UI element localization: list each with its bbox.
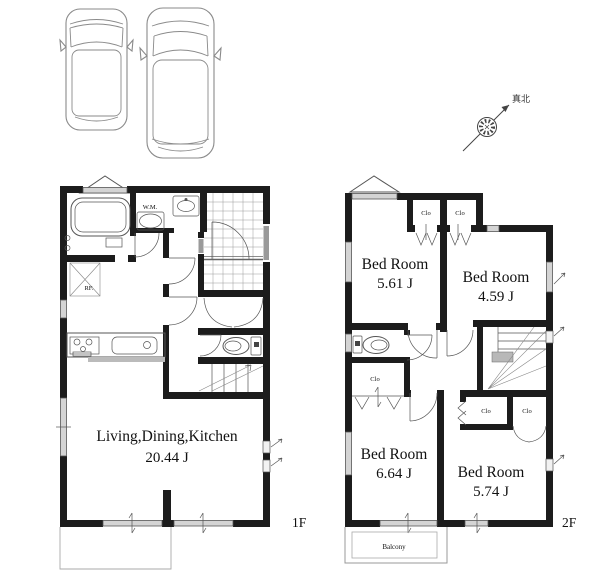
large-car-top-view-icon [140,8,221,158]
bedroom1-area: 5.61 J [377,276,413,292]
bedroom2-name: Bed Room [463,269,530,286]
window-2f-right [547,262,553,292]
floor-label-1f: 1F [292,515,307,530]
floorplan-canvas: 真北 [0,0,600,574]
window-2f-bottom-right [465,521,488,527]
bedroom4-area: 5.74 J [473,484,509,500]
vent-window-right-1 [263,441,270,453]
small-car-top-view-icon [60,9,133,130]
closet-doors-mid [458,401,546,442]
label-washing-machine: W.M. [143,204,158,211]
closet-fold-doors-left [352,387,404,409]
window-ldk-bottom-right [174,521,233,527]
floor-plan-2f: Balcony Bed Room 5.61 J Bed Room 4.59 J … [345,176,577,563]
stove [70,337,99,354]
floor-label-2f: 2F [562,515,577,530]
window-2f-left-3 [346,432,352,475]
window-2f-top [352,194,397,200]
kitchen-counter [67,333,165,362]
stairs-1f [199,364,263,392]
washbasin [173,196,199,216]
closet-label-5: Clo [522,408,531,415]
closet-label-1: Clo [421,210,430,217]
stairs-2f [488,327,546,389]
compass-rose-icon: 真北 [463,93,530,151]
room-area-ldk: 20.44 J [145,450,189,466]
closet-label-3: Clo [370,376,379,383]
window-2f-step [487,226,499,232]
label-refrigerator: RF. [84,285,93,292]
bedroom1-name: Bed Room [362,256,429,273]
vent-window-2f-right-1 [546,331,553,343]
floorplan-page: 真北 [0,0,600,574]
closet-label-2: Clo [455,210,464,217]
window-2f-bottom-left [380,521,437,527]
room-label-ldk: Living,Dining,Kitchen [96,428,237,445]
window-2f-left-2 [346,334,352,352]
balcony-label: Balcony [382,543,406,551]
window-bath-top [83,188,127,194]
genkan-door-marker [199,239,204,253]
true-north-label: 真北 [512,93,530,105]
toilet-2f [353,336,389,354]
floor-plan-1f: Living,Dining,Kitchen 20.44 J W.M. RF. 1… [56,176,307,569]
washing-machine [137,212,164,230]
terrace-outline [60,527,171,569]
window-ldk-bottom-left [103,521,162,527]
bedroom3-name: Bed Room [361,446,428,463]
gable-mark-2f [350,176,399,192]
bedroom3-area: 6.64 J [376,466,412,482]
window-kitchen-left [61,300,67,318]
entrance-tile-floor [198,193,263,290]
bathtub [65,198,130,251]
vent-window-right-2 [263,460,270,472]
front-door-slab [264,226,270,260]
bedroom4-name: Bed Room [458,464,525,481]
bedroom2-area: 4.59 J [478,289,514,305]
balcony: Balcony [345,527,447,563]
toilet-1f [223,337,261,355]
window-2f-left-1 [346,242,352,282]
vent-window-2f-right-2 [546,459,553,471]
closet-label-4: Clo [481,408,490,415]
